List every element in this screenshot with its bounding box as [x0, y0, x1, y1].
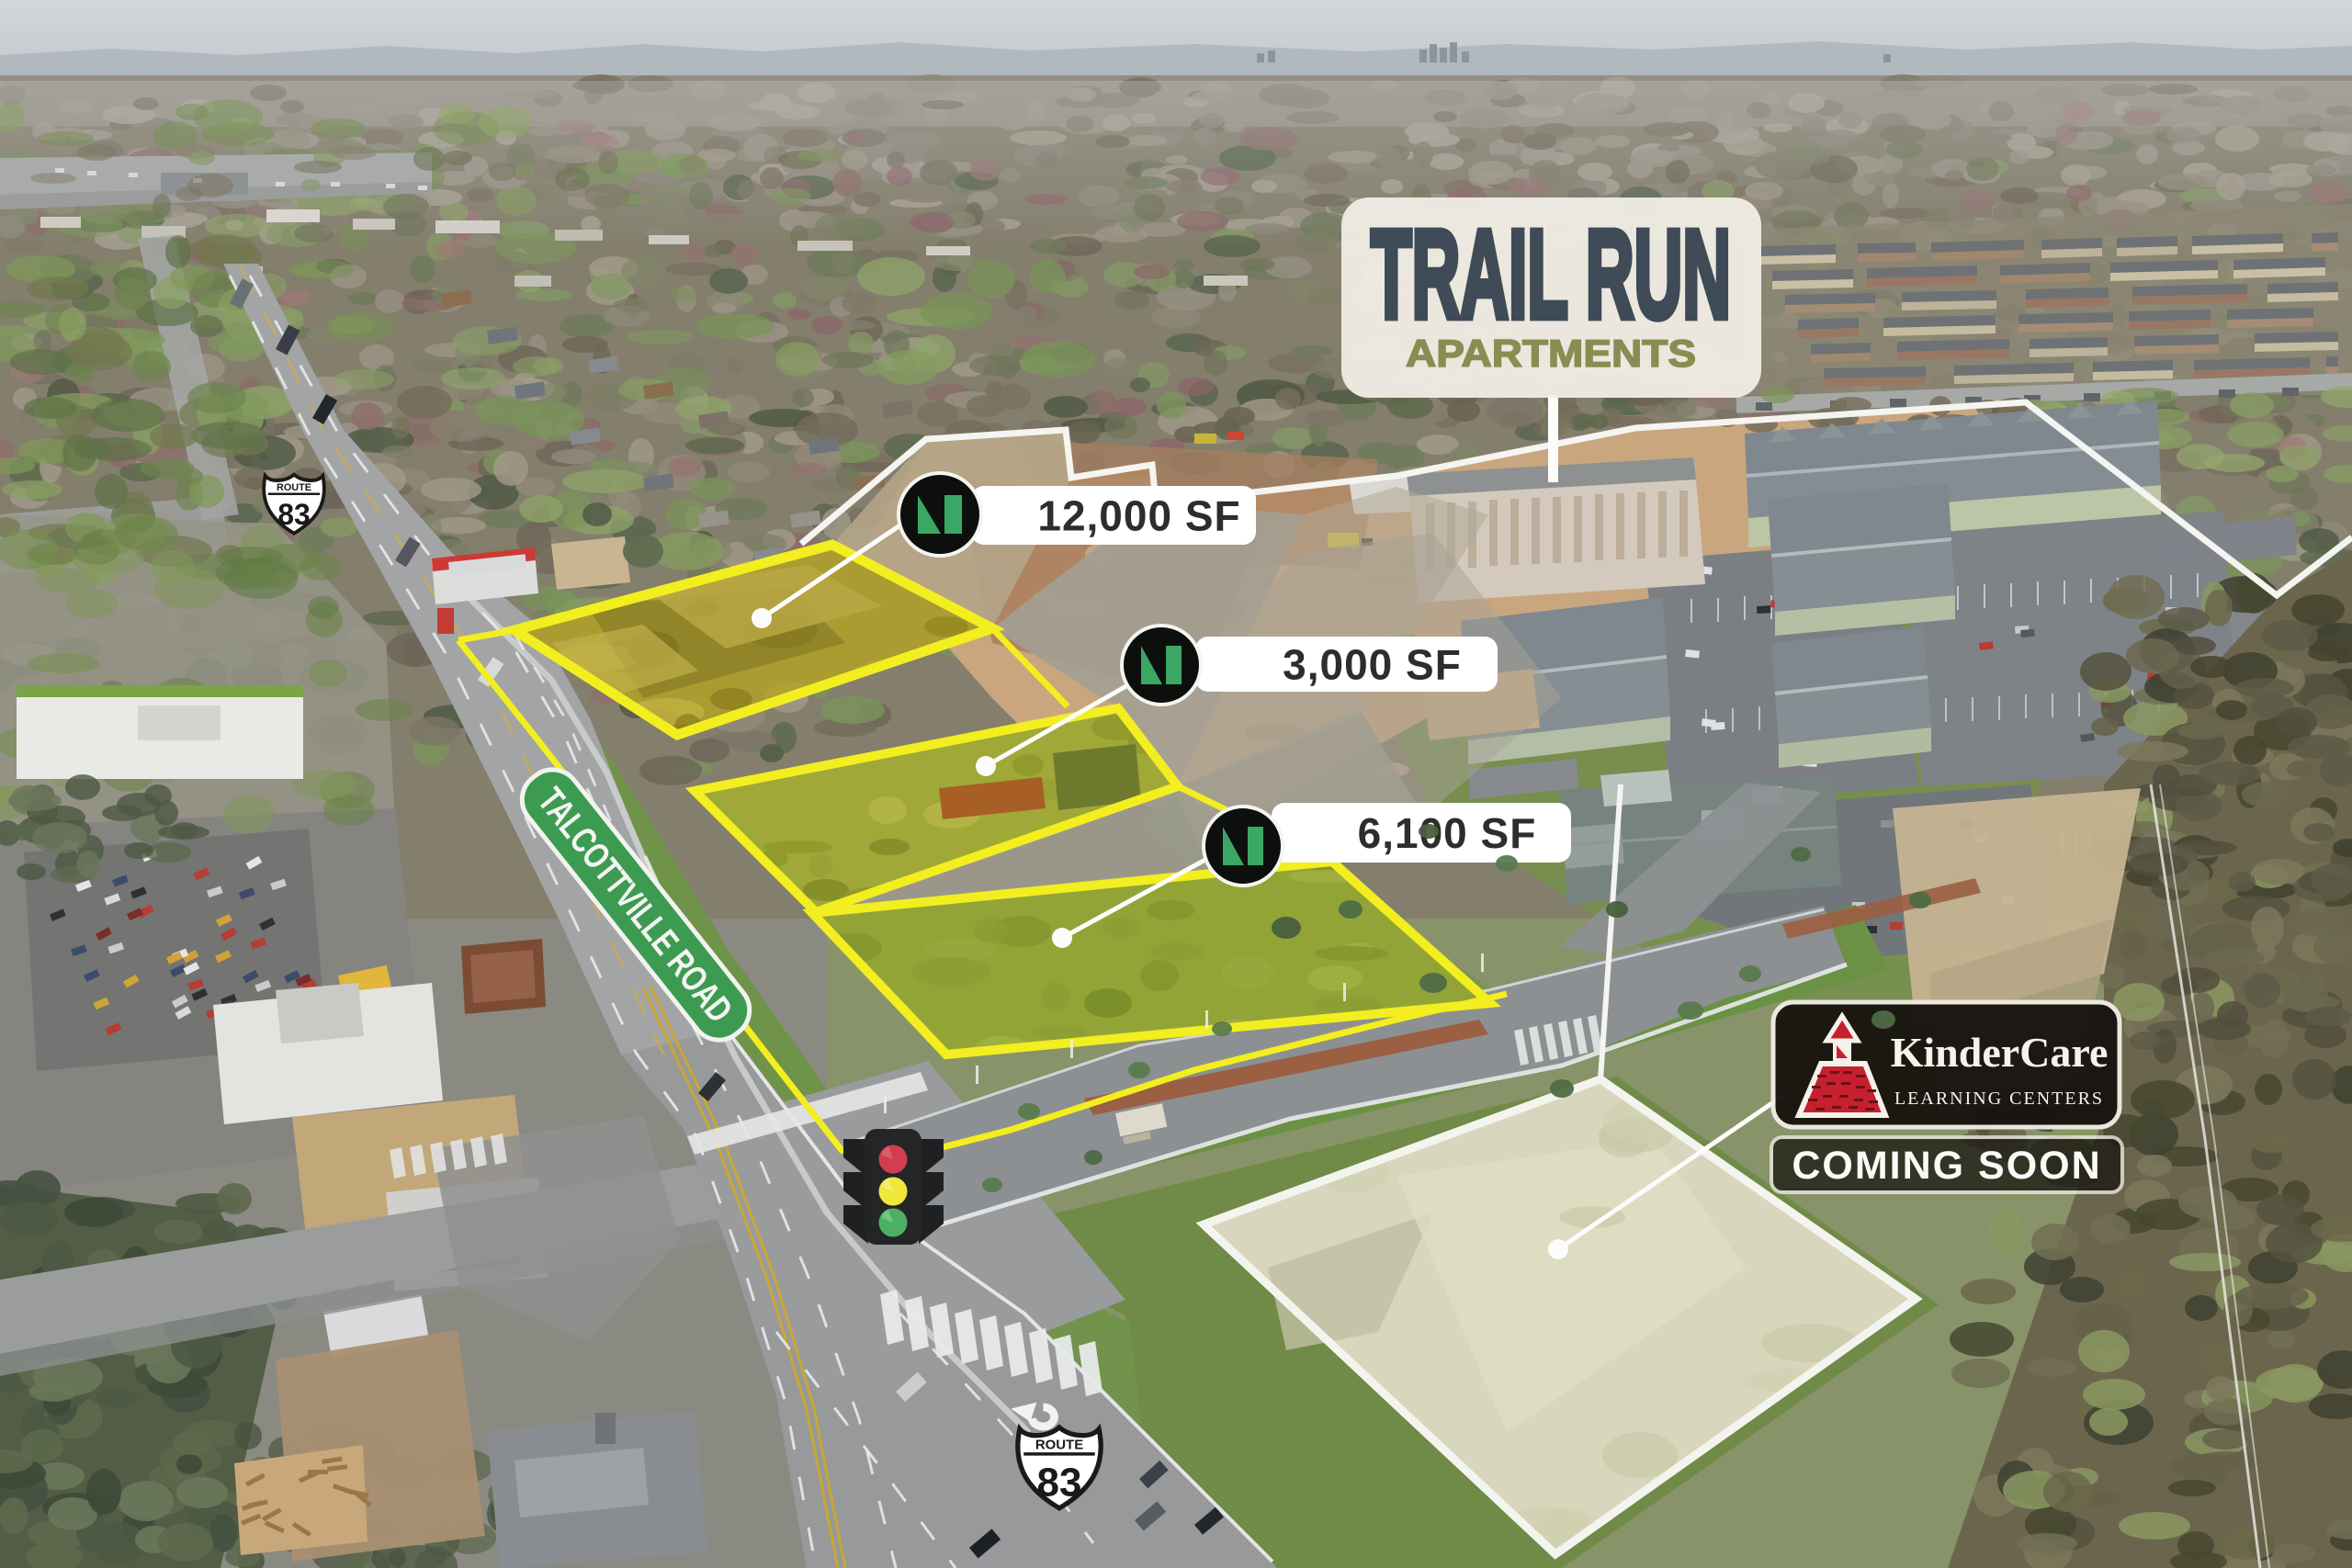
svg-text:83: 83 [277, 498, 311, 531]
svg-text:ROUTE: ROUTE [1035, 1438, 1083, 1453]
svg-text:COMING SOON: COMING SOON [1792, 1144, 2101, 1188]
svg-text:KinderCare: KinderCare [1891, 1029, 2109, 1076]
svg-text:APARTMENTS: APARTMENTS [1406, 332, 1696, 375]
svg-text:TRAIL RUN: TRAIL RUN [1371, 205, 1731, 345]
svg-text:83: 83 [1037, 1461, 1082, 1506]
svg-text:3,000 SF: 3,000 SF [1283, 641, 1462, 689]
svg-text:LEARNING CENTERS: LEARNING CENTERS [1894, 1089, 2104, 1109]
svg-text:ROUTE: ROUTE [277, 482, 311, 493]
svg-text:6,100 SF: 6,100 SF [1358, 809, 1537, 857]
svg-text:12,000 SF: 12,000 SF [1037, 492, 1240, 540]
